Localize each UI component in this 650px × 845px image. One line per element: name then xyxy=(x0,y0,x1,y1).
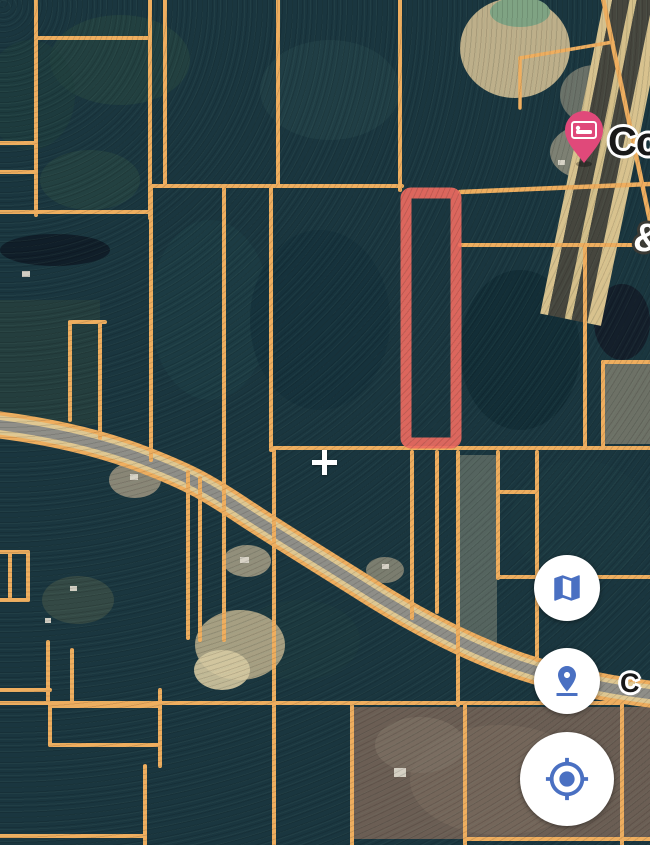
structure xyxy=(45,618,51,623)
dropped-pin-button[interactable] xyxy=(534,648,600,714)
terrain-patch xyxy=(260,40,400,140)
structure xyxy=(382,564,389,569)
terrain-patch xyxy=(194,650,250,690)
terrain-patch xyxy=(40,150,140,210)
clipped-label-right-edge: & xyxy=(633,216,650,261)
road-name-label: C xyxy=(620,668,639,699)
map-icon xyxy=(550,571,584,605)
map-canvas[interactable]: Co C & xyxy=(0,0,650,845)
map-type-button[interactable] xyxy=(534,555,600,621)
terrain-patch xyxy=(0,234,110,266)
terrain-patch xyxy=(604,364,650,444)
terrain-patch xyxy=(460,455,497,645)
terrain-patch xyxy=(375,717,465,773)
my-location-button[interactable] xyxy=(520,732,614,826)
terrain-patch xyxy=(0,300,100,425)
poi-label: Co xyxy=(608,120,650,165)
structure xyxy=(70,586,77,591)
selected-parcel-outline[interactable] xyxy=(406,193,456,443)
structure xyxy=(22,271,30,277)
satellite-map-layer xyxy=(0,0,650,845)
structure xyxy=(394,768,406,777)
map-center-crosshair xyxy=(312,450,337,475)
structure xyxy=(130,474,138,480)
structure xyxy=(240,557,249,563)
pin-drop-icon xyxy=(549,663,585,699)
my-location-icon xyxy=(544,756,590,802)
terrain-patch xyxy=(42,576,114,624)
lodging-pin[interactable] xyxy=(560,110,608,168)
